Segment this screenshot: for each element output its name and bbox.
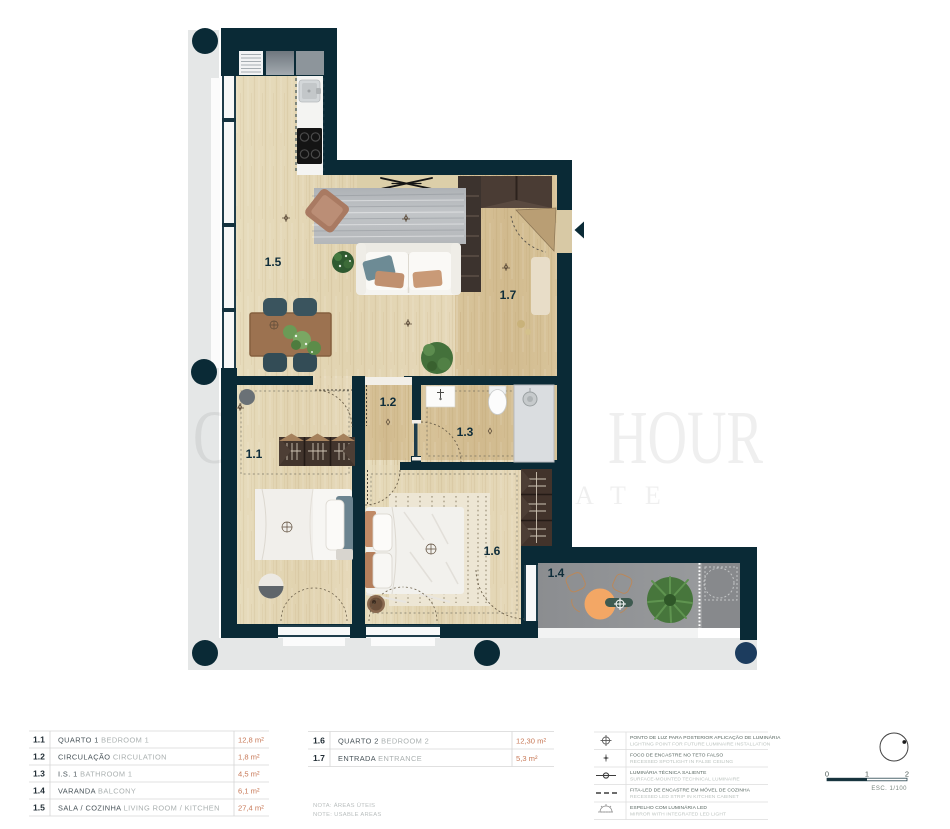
svg-text:6,1 m²: 6,1 m² [238, 786, 260, 795]
svg-text:1: 1 [865, 770, 869, 779]
svg-text:1.4: 1.4 [33, 786, 45, 796]
svg-text:CIRCULAÇÃO CIRCULATION: CIRCULAÇÃO CIRCULATION [58, 752, 167, 761]
svg-text:NOTA: ÁREAS ÚTEIS: NOTA: ÁREAS ÚTEIS [313, 802, 375, 809]
svg-text:1.1: 1.1 [246, 447, 263, 461]
svg-text:1.4: 1.4 [548, 566, 565, 580]
svg-text:I.S. 1 BATHROOM 1: I.S. 1 BATHROOM 1 [58, 769, 132, 778]
svg-text:QUARTO 1 BEDROOM 1: QUARTO 1 BEDROOM 1 [58, 735, 149, 744]
svg-text:VARANDA BALCONY: VARANDA BALCONY [58, 786, 136, 795]
svg-text:1.6: 1.6 [484, 544, 501, 558]
svg-text:LIGHTING POINT FOR FUTURE LUMI: LIGHTING POINT FOR FUTURE LUMINAIRE INST… [630, 742, 771, 748]
svg-text:RECESSED LED STRIP IN KITCHEN: RECESSED LED STRIP IN KITCHEN CABINET [630, 794, 739, 800]
svg-text:5,3 m²: 5,3 m² [516, 754, 538, 763]
svg-text:MIRROR WITH INTEGRATED LED LIG: MIRROR WITH INTEGRATED LED LIGHT [630, 812, 726, 818]
svg-text:ENTRADA ENTRANCE: ENTRADA ENTRANCE [338, 754, 422, 763]
svg-text:ESC. 1/100: ESC. 1/100 [871, 786, 907, 792]
svg-text:SURFACE-MOUNTED TECHNICAL LUMI: SURFACE-MOUNTED TECHNICAL LUMINAIRE [630, 777, 740, 783]
svg-text:HOUR: HOUR [608, 396, 764, 480]
svg-text:1.3: 1.3 [457, 425, 474, 439]
svg-text:1.7: 1.7 [313, 753, 325, 763]
svg-text:1.1: 1.1 [33, 735, 45, 745]
svg-text:1.6: 1.6 [313, 736, 325, 746]
svg-text:2: 2 [905, 770, 909, 779]
svg-text:12,8 m²: 12,8 m² [238, 735, 264, 744]
svg-text:1.5: 1.5 [265, 255, 282, 269]
svg-text:FOCO DE ENCASTRE NO TETO FALSO: FOCO DE ENCASTRE NO TETO FALSO [630, 753, 723, 759]
svg-text:4,5 m²: 4,5 m² [238, 769, 260, 778]
svg-text:SALA / COZINHA LIVING ROOM / K: SALA / COZINHA LIVING ROOM / KITCHEN [58, 803, 220, 812]
svg-text:1.2: 1.2 [33, 752, 45, 762]
svg-text:27,4 m²: 27,4 m² [238, 803, 264, 812]
svg-text:ESPELHO COM LUMINÁRIA LED: ESPELHO COM LUMINÁRIA LED [630, 804, 707, 811]
svg-text:PONTO DE LUZ PARA POSTERIOR AP: PONTO DE LUZ PARA POSTERIOR APLICAÇÃO DE… [630, 734, 781, 741]
svg-text:1.3: 1.3 [33, 769, 45, 779]
svg-text:FITA-LED DE ENCASTRE EM MÓVEL: FITA-LED DE ENCASTRE EM MÓVEL DE COZINHA [630, 787, 751, 794]
svg-text:1,8 m²: 1,8 m² [238, 752, 260, 761]
svg-text:NOTE: USABLE AREAS: NOTE: USABLE AREAS [313, 812, 382, 818]
svg-text:1.5: 1.5 [33, 803, 45, 813]
svg-text:1.7: 1.7 [500, 288, 517, 302]
svg-text:12,30 m²: 12,30 m² [516, 736, 546, 745]
svg-text:1.2: 1.2 [380, 395, 397, 409]
svg-text:RECESSED SPOTLIGHT IN FALSE CE: RECESSED SPOTLIGHT IN FALSE CEILING [630, 759, 733, 765]
svg-text:0: 0 [825, 770, 829, 779]
svg-text:LUMINÁRIA TÉCNICA SALIENTE: LUMINÁRIA TÉCNICA SALIENTE [630, 769, 707, 776]
svg-text:QUARTO 2 BEDROOM 2: QUARTO 2 BEDROOM 2 [338, 736, 429, 745]
